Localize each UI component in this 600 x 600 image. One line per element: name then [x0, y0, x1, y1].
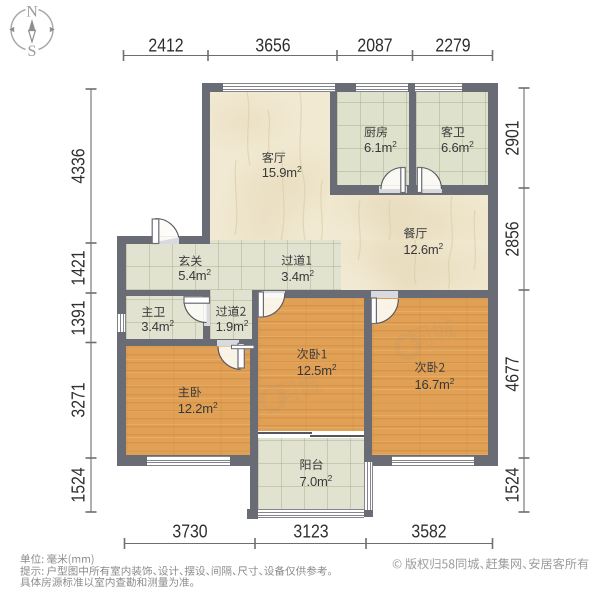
- svg-text:N: N: [26, 4, 38, 21]
- svg-text:S: S: [28, 43, 37, 60]
